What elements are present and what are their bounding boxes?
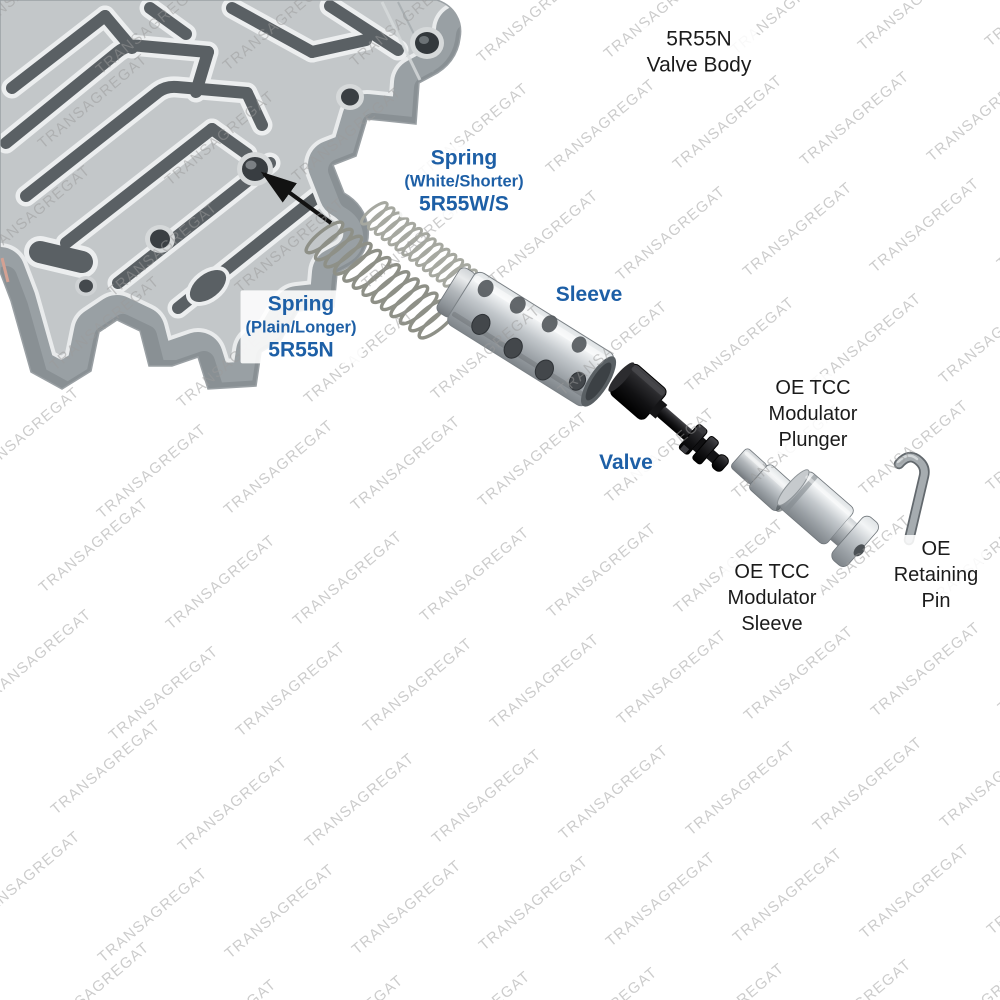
label-line: OE (894, 536, 979, 562)
label-spring-white-shorter: Spring (White/Shorter) 5R55W/S (399, 144, 528, 217)
label-line: Valve (599, 450, 653, 476)
label-line: Pin (894, 588, 979, 614)
label-line: (Plain/Longer) (246, 317, 357, 337)
label-line: 5R55N (246, 337, 357, 363)
title-line: Valve Body (647, 52, 752, 78)
label-line: Spring (246, 291, 357, 317)
label-line: Plunger (769, 427, 858, 453)
label-line: Sleeve (728, 611, 817, 637)
label-line: Modulator (728, 585, 817, 611)
label-line: Retaining (894, 562, 979, 588)
label-valve: Valve (594, 449, 658, 477)
label-line: Sleeve (556, 282, 623, 308)
label-layer: 5R55N Valve Body Spring (White/Shorter) … (0, 0, 1000, 1000)
label-line: 5R55W/S (404, 191, 523, 217)
label-line: Spring (404, 145, 523, 171)
label-spring-plain-longer: Spring (Plain/Longer) 5R55N (241, 290, 362, 363)
label-modulator-plunger: OE TCC Modulator Plunger (764, 374, 863, 454)
label-line: OE TCC (728, 559, 817, 585)
label-line: (White/Shorter) (404, 171, 523, 191)
label-retaining-pin: OE Retaining Pin (889, 535, 984, 615)
label-modulator-sleeve: OE TCC Modulator Sleeve (723, 558, 822, 638)
label-sleeve: Sleeve (551, 281, 628, 309)
diagram-stage: TRANSAGREGATTRANSAGREGATTRANSAGREGATTRAN… (0, 0, 1000, 1000)
title-line: 5R55N (647, 26, 752, 52)
label-line: Modulator (769, 401, 858, 427)
valve-body-title: 5R55N Valve Body (642, 25, 757, 78)
label-line: OE TCC (769, 375, 858, 401)
